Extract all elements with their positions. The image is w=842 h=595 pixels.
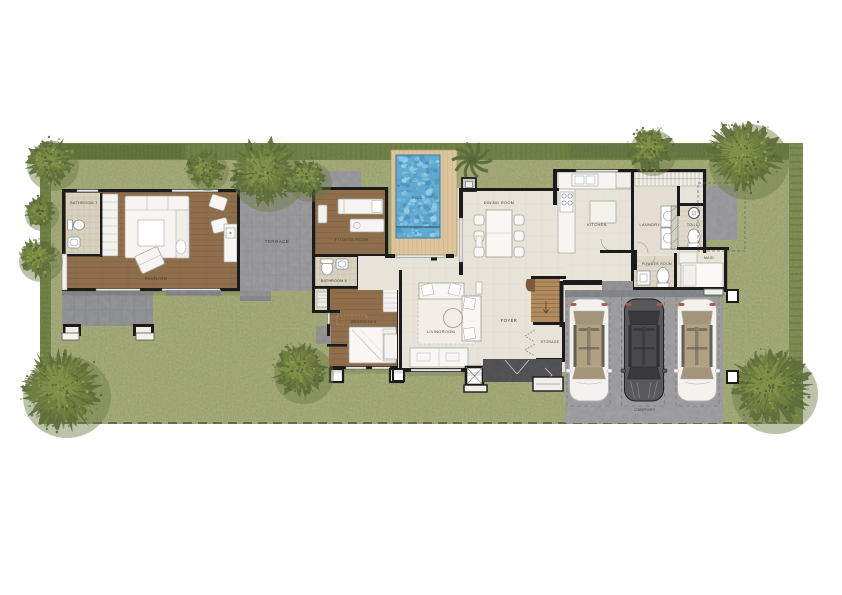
- svg-text:BATHROOM 6: BATHROOM 6: [321, 279, 347, 283]
- svg-text:PAVILION: PAVILION: [145, 276, 167, 281]
- svg-text:KITCHEN: KITCHEN: [587, 223, 606, 227]
- svg-text:TERRACE: TERRACE: [265, 239, 290, 244]
- svg-text:LAUNDRY: LAUNDRY: [640, 223, 661, 227]
- svg-text:BATHROOM 7: BATHROOM 7: [70, 201, 98, 205]
- svg-text:POOL: POOL: [412, 196, 424, 200]
- svg-text:LIVINGROOM: LIVINGROOM: [427, 330, 455, 334]
- svg-text:TOILET: TOILET: [687, 223, 701, 227]
- svg-text:STORAGE: STORAGE: [541, 340, 560, 344]
- svg-text:FITNESS ROOM: FITNESS ROOM: [335, 238, 369, 242]
- svg-text:MAID: MAID: [704, 256, 714, 260]
- svg-text:BEDROOM 6: BEDROOM 6: [351, 320, 376, 324]
- svg-text:CARPORT: CARPORT: [634, 408, 656, 412]
- svg-text:DINING ROOM: DINING ROOM: [484, 201, 515, 205]
- svg-text:FOYER: FOYER: [501, 318, 517, 323]
- svg-text:POWDER ROOM: POWDER ROOM: [642, 262, 672, 266]
